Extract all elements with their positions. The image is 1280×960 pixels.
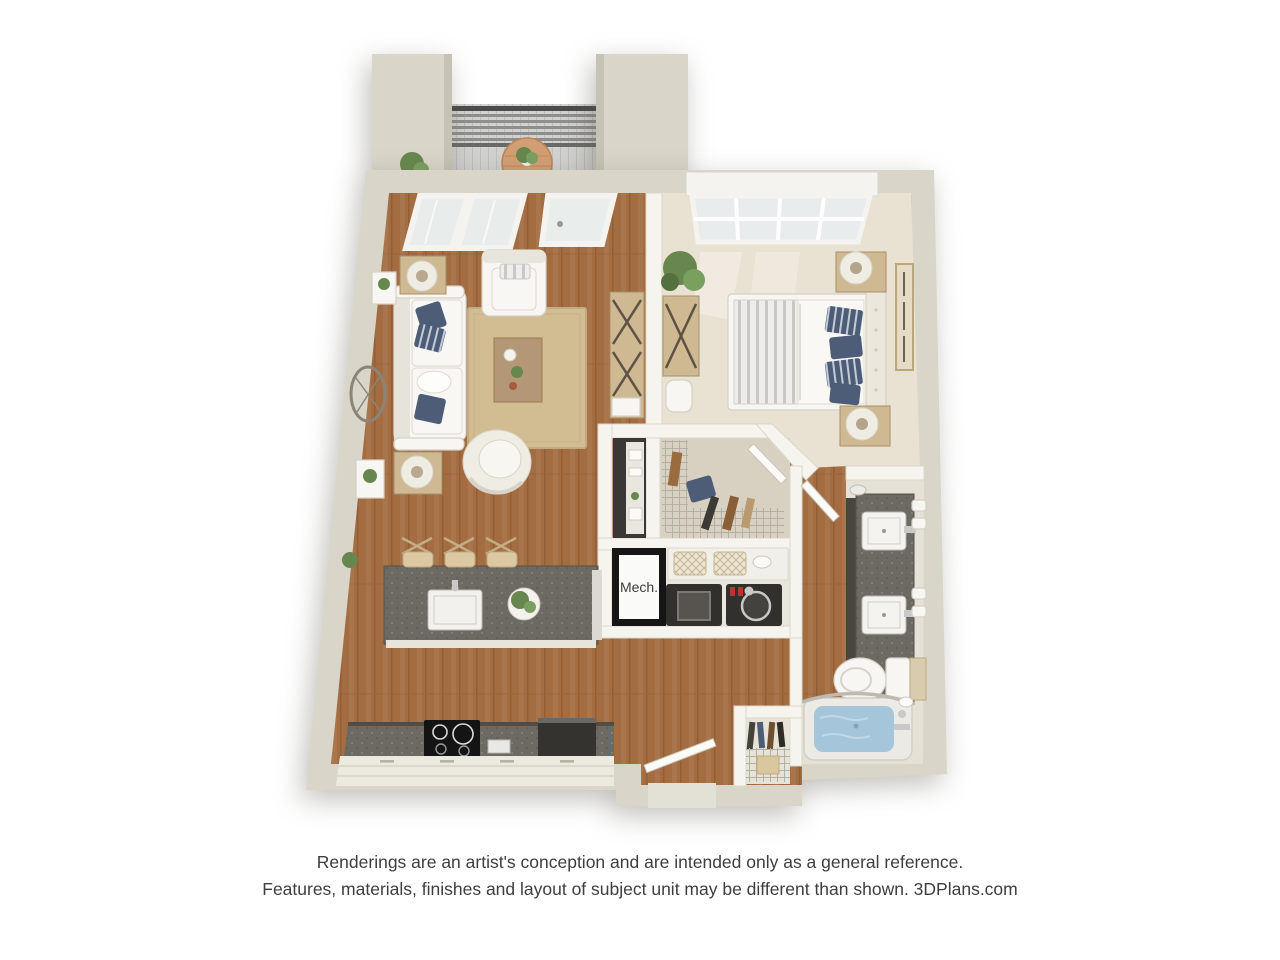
disclaimer-line-1: Renderings are an artist's conception an… [0, 849, 1280, 876]
wall-sconce-icon [912, 500, 926, 511]
dryer-knob [738, 587, 743, 596]
closet-north-wall [598, 424, 770, 438]
nightstand-bottom [840, 406, 890, 446]
balcony [372, 54, 688, 188]
floor-plant-icon [342, 552, 358, 568]
vanity-tray [850, 485, 866, 495]
wall-sconce-icon [912, 606, 926, 617]
tub-faucet-icon [894, 724, 910, 730]
kitchen-island [384, 566, 602, 648]
bedroom-window [686, 172, 878, 242]
mech-label: Mech. [620, 579, 658, 595]
bed-pillow [829, 382, 861, 405]
laundry-accessory [753, 556, 771, 568]
sofa [394, 286, 466, 450]
bedroom-wall-art [896, 264, 913, 370]
small-appliance [488, 740, 510, 753]
disclaimer-line-2: Features, materials, finishes and layout… [0, 876, 1280, 903]
armchair [482, 250, 546, 316]
bed-headboard [866, 288, 886, 416]
tub-water [814, 706, 894, 752]
nook-closet-wall [646, 438, 660, 538]
armchair-pillow [500, 264, 530, 279]
bathtub [802, 693, 914, 760]
accent-chair [463, 430, 531, 494]
side-table-top [400, 256, 446, 294]
closet-east-wall [790, 466, 802, 638]
disclaimer-caption: Renderings are an artist's conception an… [0, 849, 1280, 903]
shower-curtain [899, 697, 913, 707]
bathroom-north-wall [846, 466, 924, 480]
storage-basket-icon [714, 552, 746, 575]
storage-box [757, 756, 779, 774]
nook-plant-icon [631, 492, 639, 500]
patio-door [542, 196, 614, 244]
dryer [726, 584, 782, 626]
sofa-bolster [417, 371, 451, 393]
built-in-nook [613, 438, 646, 538]
range-counter [336, 718, 614, 786]
laundry-south-wall [598, 626, 802, 638]
side-table-bottom [394, 452, 442, 494]
mech-closet: Mech. [612, 548, 666, 626]
bed-striped-duvet [734, 300, 798, 404]
bed-pillow [829, 334, 863, 359]
bed [728, 288, 886, 416]
floor-plan-page: Mech. [0, 0, 1280, 960]
laundry [666, 548, 788, 626]
nightstand-top [836, 252, 886, 292]
dryer-knob [730, 587, 735, 596]
door-handle-icon [557, 221, 563, 227]
storage-basket-icon [674, 552, 706, 575]
living-room-glass-doors [406, 196, 614, 248]
coat-closet-west-wall [734, 706, 746, 786]
floor-plan-rendering: Mech. [0, 0, 1280, 960]
desk-chair [666, 380, 692, 412]
bed-pillow-striped [824, 306, 863, 337]
bed-pillow-striped [825, 358, 864, 388]
coffee-table [494, 338, 542, 402]
wall-sconce-icon [912, 518, 926, 529]
media-console [610, 292, 644, 418]
refrigerator [538, 718, 596, 758]
bathroom-west-wall [790, 638, 802, 766]
living-bedroom-wall [646, 193, 662, 436]
washer [666, 584, 722, 626]
towel-shelf [910, 658, 926, 700]
dryer-dial [745, 587, 754, 596]
wall-sconce-icon [912, 588, 926, 599]
entry-threshold [648, 783, 716, 808]
